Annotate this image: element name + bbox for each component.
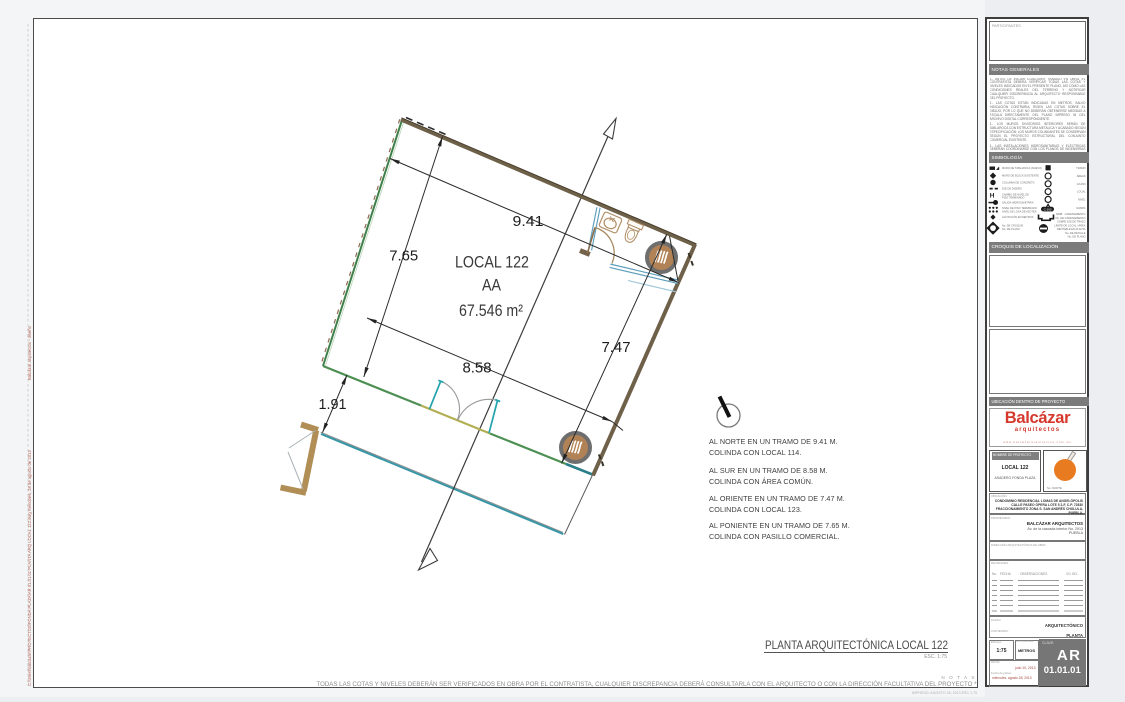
svg-text:COLINDA CON LOCAL 114.: COLINDA CON LOCAL 114. [709,448,801,457]
svg-text:COLUMNA DE CONCRETO: COLUMNA DE CONCRETO [1002,181,1035,185]
svg-text:67.546 m²: 67.546 m² [459,301,523,320]
svg-text:ÁREAS: ÁREAS [1077,174,1086,178]
svg-text:No. DE PLANO: No. DE PLANO [1002,227,1020,231]
svg-text:PLANTA ARQUITECTÓNICA LOCAL 12: PLANTA ARQUITECTÓNICA LOCAL 122 [765,639,948,652]
svg-text:1.91: 1.91 [319,396,347,413]
svg-text:C:\Users\balcazar\PROYECTOS\FO: C:\Users\balcazar\PROYECTOS\FONDA PLAZA\… [27,450,32,686]
svg-text:No. DE PLANO: No. DE PLANO [1068,234,1086,238]
svg-text:N O T A S: N O T A S [941,675,976,680]
svg-text:MURO DE BLOCK EXISTENTE: MURO DE BLOCK EXISTENTE [1002,174,1039,178]
svg-text:NIVEL: NIVEL [1078,197,1086,201]
svg-text:No.: No. [992,572,997,576]
svg-text:COLINDA CON ÁREA COMÚN.: COLINDA CON ÁREA COMÚN. [709,477,813,486]
svg-text:CAJÓN: CAJÓN [1077,181,1086,186]
svg-text:AL NORTE EN UN TRAMO DE 9.41 M: AL NORTE EN UN TRAMO DE 9.41 M. [709,437,838,446]
svg-text:RAMPA: RAMPA [1076,206,1085,210]
svg-text:No. DE DETALLE: No. DE DETALLE [1065,231,1086,235]
svg-text:COLINDA CON LOCAL 123.: COLINDA CON LOCAL 123. [709,505,802,514]
svg-text:FECHA: FECHA [1000,572,1012,576]
svg-text:C-100: C-100 [1044,207,1052,211]
svg-text:VO. BO.: VO. BO. [1066,572,1078,576]
svg-text:AA: AA [482,276,502,295]
svg-text:AL SUR EN UN TRAMO DE 8.58 M.: AL SUR EN UN TRAMO DE 8.58 M. [709,466,828,475]
svg-text:LOCAL 122: LOCAL 122 [455,253,529,272]
svg-text:IMPRESO: AGOSTO 28, 2013 ESC 1: IMPRESO: AGOSTO 28, 2013 ESC 1:75 [912,691,977,695]
svg-text:7.65: 7.65 [389,248,418,265]
svg-text:ESC. 1:75: ESC. 1:75 [924,654,947,660]
svg-text:SIMB.: SIMB. [1056,212,1063,216]
svg-text:PISO TERMINADO: PISO TERMINADO [1002,196,1024,200]
svg-text:EJE DE DISEÑO: EJE DE DISEÑO [1002,186,1022,191]
svg-text:9.41: 9.41 [513,213,544,230]
svg-text:ACOTACIÓN EN METROS: ACOTACIÓN EN METROS [1002,214,1034,219]
svg-text:COLINDA CON PASILLO COMERCIAL.: COLINDA CON PASILLO COMERCIAL. [709,532,840,541]
svg-text:LOCAL: LOCAL [1077,190,1086,194]
svg-text:Balcázar arquitectos - diseño: Balcázar arquitectos - diseño [27,325,32,380]
svg-text:OBSERVACIONES: OBSERVACIONES [1020,572,1047,576]
svg-text:NIVEL DE LOSA DE AZOTEA: NIVEL DE LOSA DE AZOTEA [1002,210,1037,214]
svg-text:SALIDA HIDROSANITARIA: SALIDA HIDROSANITARIA [1002,201,1034,205]
svg-text:8.58: 8.58 [463,360,492,377]
svg-text:H: H [990,193,995,200]
svg-text:No. DE CADENAMIENTO: No. DE CADENAMIENTO [1056,216,1086,220]
svg-text:AL PONIENTE EN UN TRAMO DE 7.6: AL PONIENTE EN UN TRAMO DE 7.65 M. [709,521,850,530]
svg-text:No. DE CROQUIS: No. DE CROQUIS [1002,224,1023,228]
svg-text:RENTABLE EN PLANTA: RENTABLE EN PLANTA [1057,227,1086,231]
svg-text:AL ORIENTE EN UN TRAMO DE 7.47: AL ORIENTE EN UN TRAMO DE 7.47 M. [709,494,845,503]
svg-text:CADENAMIENTO: CADENAMIENTO [1065,212,1086,216]
svg-text:MURO DE TABLAROCA (NUEVO): MURO DE TABLAROCA (NUEVO) [1002,166,1042,170]
svg-text:SOBRE EJE DE TRAZO: SOBRE EJE DE TRAZO [1057,219,1085,223]
svg-text:TODAS LAS COTAS Y NIVELES DEBE: TODAS LAS COTAS Y NIVELES DEBERÁN SER VE… [317,679,978,688]
svg-text:7.47: 7.47 [602,339,631,356]
svg-text:TRAMO: TRAMO [1076,166,1085,170]
svg-text:No. NORTE: No. NORTE [1047,486,1062,490]
svg-text:NIVEL DE PISO TERMINADO: NIVEL DE PISO TERMINADO [1002,206,1037,210]
